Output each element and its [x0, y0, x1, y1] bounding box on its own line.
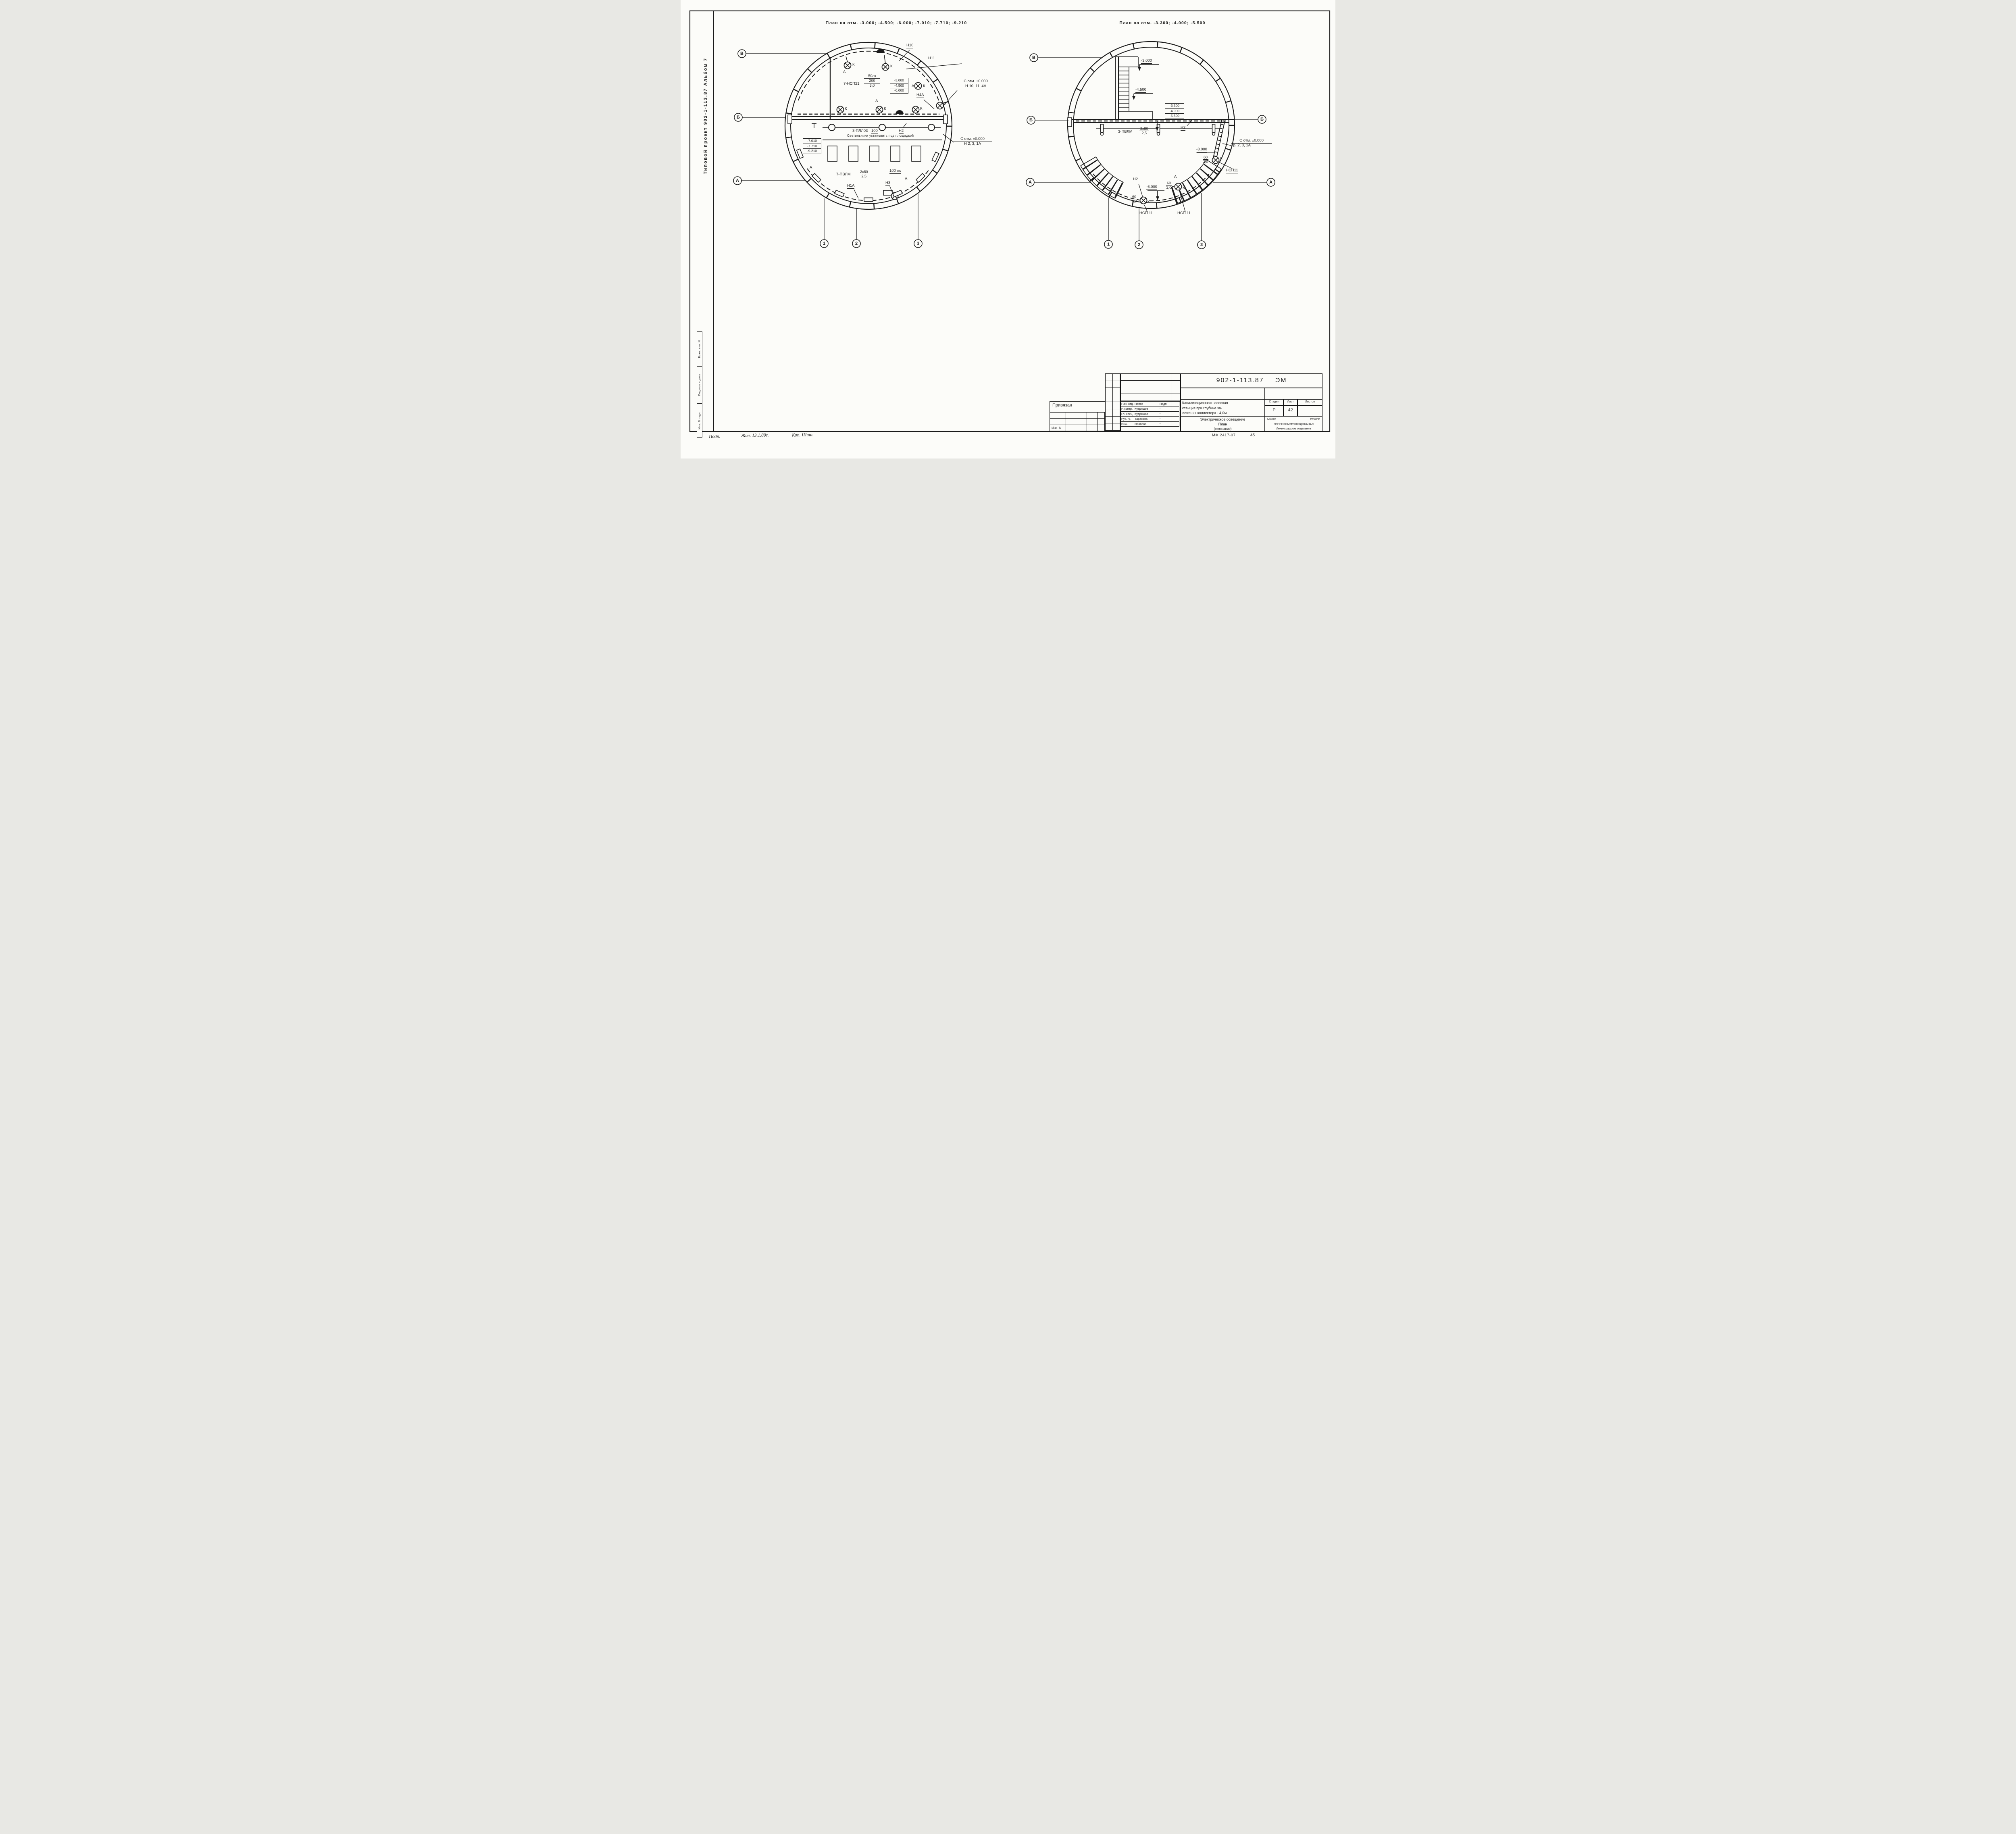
elevation-row: -6.000 [890, 88, 908, 93]
sheets-header: Листов [1297, 399, 1322, 406]
phase-letter: А [912, 84, 914, 89]
switch-letter: К [890, 65, 893, 69]
sheets-value [1297, 406, 1322, 416]
circuit-label-n2: Н2 [899, 129, 904, 134]
lamp-spec: 60 2,0 [1166, 181, 1172, 190]
sheet-title-line: Электрическое освещение [1181, 417, 1264, 422]
org-ministry: МЖКХ [1267, 417, 1276, 422]
luminaire-icon [864, 198, 873, 202]
staff-role: Инж. [1121, 422, 1134, 427]
switch-letter: К [1220, 157, 1223, 161]
lamp-icon [882, 64, 889, 71]
axis-marker-1: 1 [1107, 242, 1110, 247]
note-from-0000-right: С отм. ±0.000 Гр. 2, 3, 1А [1231, 139, 1272, 148]
note-line: Н 2, 3, 1А [953, 142, 992, 146]
right-plan-leaders [1139, 120, 1232, 212]
lamp-icon [915, 83, 922, 90]
switch-letter: К [1183, 186, 1185, 190]
axis-marker-b: Б [1260, 117, 1264, 122]
phase-letter: А [843, 70, 846, 75]
circuit-label-n11: Н11 [928, 56, 935, 61]
blueprint-sheet: План на отм. -3.000; -4.500; -6.000; -7.… [681, 0, 1335, 458]
left-plan-lamps [797, 49, 943, 202]
fixture-label-nsp11: НСП 11 [1139, 211, 1153, 216]
staff-name: Осипова [1134, 422, 1159, 427]
sheet-header: Лист [1283, 399, 1297, 406]
elevation-minus-3000-right: -3.000 [1196, 148, 1207, 152]
fixture-spec-nsp21: 50лк 200 3,0 [864, 74, 880, 88]
luminaire-icon [835, 190, 844, 197]
right-plan-structure [1068, 57, 1234, 204]
staff-name: Тарасова [1134, 417, 1159, 421]
fixture-spec-pvlm-right: 2x80 2,5 [1139, 127, 1149, 135]
circuit-label-n4a: Н4А [916, 93, 924, 98]
fixture-label-nsp11: НСП 11 [1177, 211, 1191, 216]
switch-letter: К [845, 107, 847, 111]
lux-label: 100 лк [889, 169, 901, 174]
elevation-table-upper: -3.000 -4.500 -6.000 [890, 78, 908, 94]
circuit-label-n3: Н3 [885, 181, 890, 186]
lamp-icon [837, 106, 844, 113]
switch-letter: К [920, 107, 923, 111]
elevation-row: -9.210 [803, 149, 821, 154]
sidebar-project-title: Типовой проект 902-1-113.87 Альбом 7 [703, 58, 708, 174]
fraction-top: 60 [1166, 181, 1172, 185]
axis-marker-v: В [1032, 55, 1035, 60]
left-plan-leaders [854, 50, 962, 198]
axis-marker-a: А [736, 178, 739, 183]
object-name-cell: Канализационная насосная станция при глу… [1181, 399, 1265, 416]
circuit-label-n10: Н10 [906, 44, 913, 48]
elevation-row: -4.500 [890, 83, 908, 89]
circuit-label-n2-bottom: Н2 [1133, 177, 1138, 182]
staff-sign: Подп. [1159, 402, 1172, 406]
axis-marker-1: 1 [823, 241, 825, 246]
sheet-title-line: (окончание) [1181, 427, 1264, 431]
staff-table: Нач. отд. Попов Подп. Н.контр. Кудряшов … [1120, 401, 1181, 431]
lux-value: 50лк [864, 74, 880, 79]
fraction-bottom: 2,5 [1139, 131, 1149, 135]
titleblock-spacer-right [1265, 388, 1322, 399]
axis-marker-v: В [740, 51, 744, 56]
sheet-title-line: План [1181, 422, 1264, 427]
switch-letter: К [1148, 200, 1150, 204]
platform-note: Светильники установить под площадкой [847, 134, 914, 138]
page-number: 45 [1250, 433, 1255, 438]
staff-sign: ″ [1159, 422, 1172, 427]
circuit-label-n2-right: Н2 [1181, 126, 1185, 131]
right-plan-axes [1026, 54, 1275, 249]
doc-number: 902-1-113.87 [1216, 377, 1264, 384]
sheet-value: 42 [1283, 406, 1297, 416]
note-from-0000-mid: С отм. ±0.000 Н 2, 3, 1А [953, 137, 992, 146]
object-line: ложения коллектора - 4,0м [1182, 411, 1264, 416]
lamp-spec: 60 2,0 [1131, 195, 1137, 204]
handwriting-copy: Коп. Шиш. [792, 432, 814, 438]
phase-letter: А [1174, 175, 1177, 179]
axis-marker-2: 2 [855, 241, 858, 246]
org-republic: РСФСР [1310, 417, 1320, 422]
lamp-icon [844, 62, 851, 69]
axis-marker-b: Б [1029, 118, 1033, 123]
privyazan-label: Привязан [1052, 403, 1072, 408]
organization-cell: МЖКХ РСФСР ГИПРОКОММУНВОДОКАНАЛ Ленингра… [1265, 416, 1322, 431]
right-plan-title: План на отм. -3.300; -4.000; -5.500 [1100, 21, 1225, 25]
elevation-table-right: -3.300 -4.000 -5.500 [1165, 103, 1184, 119]
inv-n-label: Инв. N [1052, 426, 1062, 430]
left-plan-title: План на отм. -3.000; -4.500; -6.000; -7.… [810, 21, 983, 25]
axis-marker-3: 3 [1200, 242, 1203, 247]
switch-letter: К [923, 84, 925, 89]
staff-role: Гл. спец. [1121, 412, 1134, 417]
fraction-bottom: 2,0 [1131, 199, 1137, 203]
circuit-label-n1a: Н1А [847, 184, 854, 189]
elevation-row: -3.000 [890, 78, 908, 83]
fraction-top: 2x80 [1139, 127, 1149, 131]
elevation-minus-6000: -6.000 [1146, 185, 1157, 190]
stamp-label: Подпись и дата [698, 374, 701, 396]
fixture-label-pvlm: 7-ПВЛМ [836, 173, 851, 177]
phase-letter: А [875, 99, 878, 104]
revision-grid-narrow [1105, 373, 1120, 431]
axis-marker-a: А [1269, 180, 1272, 185]
staff-name: Кудряшов [1134, 412, 1159, 417]
staff-role: Н.контр. [1121, 406, 1134, 411]
stamp-label: Взам. инв. N [698, 340, 701, 358]
fixture-label-nsp21: 7-НСП21 [843, 82, 860, 86]
fixture-name: 3-ПЛЛ03 [852, 129, 868, 133]
elevation-row: -7.010 [803, 139, 821, 144]
lamp-icon [912, 106, 919, 113]
fraction-top: 60 [1131, 195, 1137, 199]
phase-letter: А [905, 177, 907, 181]
note-from-0000-top: С отм. ±0.000 Н 10, 11, 4А [956, 79, 995, 89]
stage-value: Р [1265, 406, 1283, 416]
lamp-icon [1175, 183, 1182, 190]
handwriting-left: Подп. [709, 434, 721, 440]
doc-number-cell: 902-1-113.87 ЭМ [1181, 373, 1322, 388]
fixture-count: 100 [871, 129, 878, 133]
lamp-icon [1212, 157, 1219, 164]
fraction-top: 2x80 [859, 170, 869, 174]
switch-letter: К [884, 107, 886, 111]
axis-marker-b: Б [737, 115, 740, 120]
fixture-label-pvlm-right: 3-ПВЛМ [1118, 130, 1133, 134]
staff-name: Кудряшов [1134, 406, 1159, 411]
lamp-icon [1140, 197, 1147, 204]
object-line: Канализационная насосная [1182, 400, 1264, 406]
titleblock-spacer-left [1181, 388, 1265, 399]
staff-name: Попов [1134, 402, 1159, 406]
switch-letter: К [852, 63, 855, 67]
lamp-icon [937, 102, 943, 109]
handwriting-date: Жил. 13.1.89г. [741, 433, 769, 438]
note-line: Н 10, 11, 4А [956, 84, 995, 89]
fraction-bottom: 2,0 [1166, 185, 1172, 190]
staff-sign: ″ [1159, 406, 1172, 411]
phase-letter: А [810, 166, 812, 170]
mf-code: МФ 2417-07 [1212, 433, 1236, 438]
axis-marker-3: 3 [917, 241, 919, 246]
fraction-bottom: 2,5 [859, 174, 869, 178]
org-institute: ГИПРОКОММУНВОДОКАНАЛ [1266, 422, 1321, 427]
left-plan-ring [785, 42, 952, 209]
revision-grid-upper [1120, 373, 1181, 401]
elevation-minus-3000: -3.000 [1141, 59, 1152, 64]
elevation-row: -4.000 [1165, 109, 1184, 114]
elevation-row: -5.500 [1165, 114, 1184, 119]
fixture-label-pll: 3-ПЛЛ03 100 [852, 129, 878, 133]
frame-border [690, 11, 1330, 431]
axis-marker-a: А [1029, 180, 1032, 185]
privyazan-cell: Привязан [1050, 401, 1105, 412]
staff-sign: ″ [1159, 417, 1172, 421]
axis-marker-2: 2 [1138, 242, 1140, 247]
object-line: станция при глубине за- [1182, 406, 1264, 411]
org-branch: Ленинградское отделение [1266, 427, 1321, 431]
fixture-label-nsp11: НСП11 [1226, 169, 1238, 173]
stamp-podpis-data: Подпись и дата [697, 366, 702, 403]
fixture-spec-pvlm: 2x80 2,5 [859, 170, 869, 179]
dome-lamp-icon [896, 110, 904, 114]
lamp-spec: 60 2,0 [1203, 155, 1208, 164]
note-line: Гр. 2, 3, 1А [1231, 144, 1272, 148]
stamp-inv-podl: Инв. N подл. [697, 403, 702, 438]
stamp-label: Инв. N подл. [698, 411, 701, 429]
elevation-row: -3.300 [1165, 104, 1184, 109]
switch-letter: К [943, 102, 946, 107]
lamp-icon [876, 106, 883, 113]
doc-code: ЭМ [1275, 377, 1287, 384]
staff-role: Рук. гр. [1121, 417, 1134, 421]
power-value: 200 [864, 79, 880, 83]
stamp-vzam-inv: Взам. инв. N [697, 331, 702, 366]
fraction-bottom: 2,0 [1203, 160, 1208, 164]
staff-role: Нач. отд. [1121, 402, 1134, 406]
elevation-minus-4500: -4.500 [1135, 88, 1146, 93]
fraction-top: 60 [1203, 155, 1208, 160]
stage-header: Стадия [1265, 399, 1283, 406]
height-value: 3,0 [864, 83, 880, 88]
staff-sign: ″ [1159, 412, 1172, 417]
sheet-title-cell: Электрическое освещение План (окончание) [1181, 416, 1265, 431]
elevation-row: -7.710 [803, 144, 821, 149]
elevation-table-lower: -7.010 -7.710 -9.210 [803, 138, 821, 154]
